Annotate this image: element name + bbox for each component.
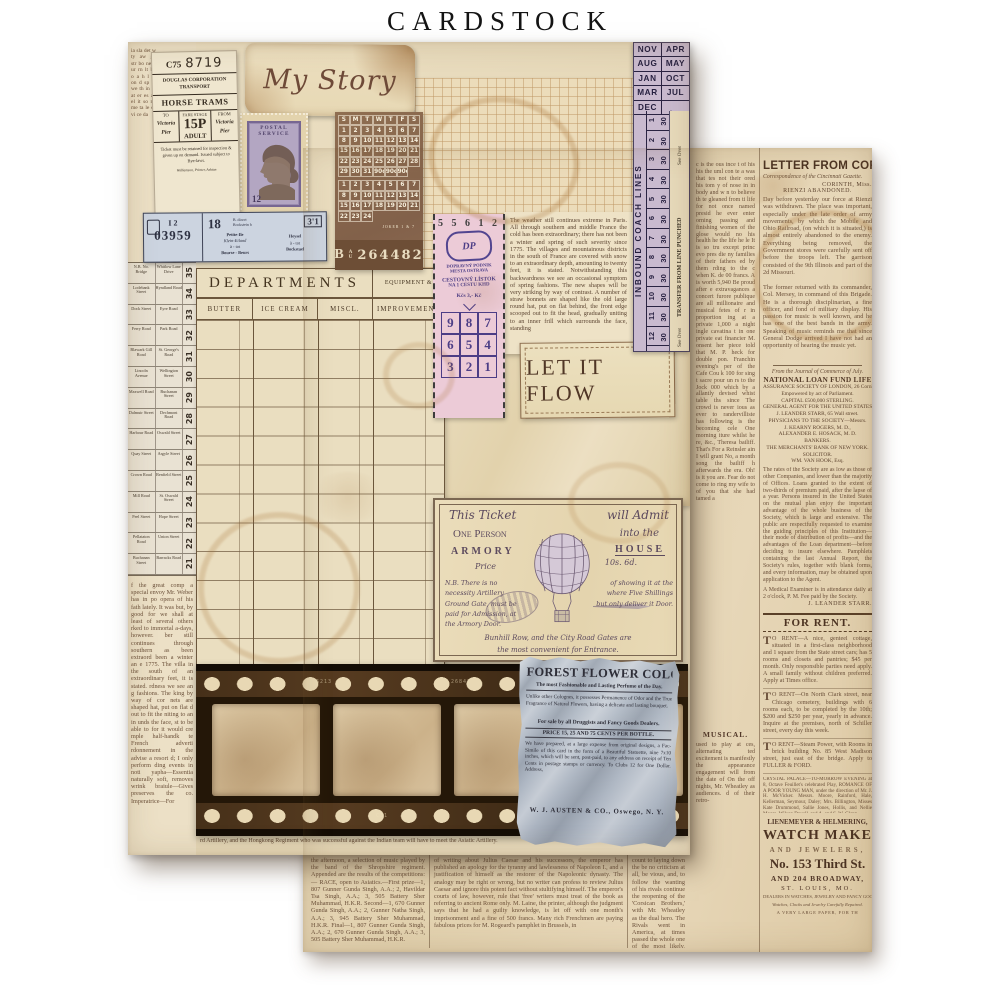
newsprint-column: of writing about Julius Caesar and his s…: [429, 854, 627, 948]
fare-class: ADULT: [180, 133, 211, 141]
calendar-day: 5: [385, 180, 397, 190]
advert-signature: J. LEANDER STARR.: [763, 601, 872, 607]
newsprint-column: count to laying down the be no criticism…: [627, 854, 689, 948]
calendar-day: 28: [408, 157, 420, 167]
punch-digit: 9: [441, 312, 460, 334]
calendar-day: 19: [385, 201, 397, 211]
fare-from-cell: FROM Victoria Pier: [211, 110, 238, 141]
classifieds-header: FOR RENT.: [763, 613, 872, 632]
printer-credit: Williamson, Printer, Ashton: [155, 167, 239, 173]
newspaper-bottom-strip: the afternoon, a selection of music play…: [307, 854, 690, 948]
stage-name: Blawark Gill Road: [128, 346, 156, 366]
stage-number: 35: [185, 267, 194, 278]
advert-price-line: PRICE 15, 25 AND 75 CENTS PER BOTTLE.: [525, 728, 671, 741]
price-value: 10s. 6d.: [605, 558, 637, 567]
stage-number: 27: [185, 434, 194, 445]
calendar-day: 90c: [385, 167, 397, 177]
from-value: Pier: [212, 128, 238, 135]
film-edge-number: 26847: [451, 679, 471, 685]
stage-number: 23: [185, 517, 194, 528]
calendar-day: 13: [397, 136, 409, 146]
stamp-denomination: 12: [252, 194, 261, 204]
ticket-line: HOUSE: [615, 544, 665, 556]
watchmaker-trade2: AND JEWELERS,: [763, 846, 872, 854]
stage-name: Buchanan Street: [156, 388, 184, 408]
calendar-day: 8: [338, 136, 350, 146]
month-left: NOV: [634, 43, 662, 56]
stage-number: 28: [185, 413, 194, 424]
bus-stage-row: Ferry Road Park Road 32: [128, 325, 196, 346]
stage-name: St. Oswald Street: [156, 492, 184, 512]
month-rows: NOV APR AUG MAY JAN OCT MAR JUL DEC: [634, 43, 689, 115]
ticket-line: into the: [620, 528, 659, 539]
ticket-body-left: N.B. There is no necessity Artillery Gro…: [445, 578, 527, 629]
calendar-day: 30: [350, 167, 362, 177]
hot-air-balloon-illustration: [523, 510, 601, 654]
stop-name: Bourse - Beurs: [205, 250, 265, 257]
stage-name: Peel Street: [128, 513, 156, 533]
calendar-day: 8: [338, 191, 350, 201]
punch-row: 2 30: [647, 131, 671, 151]
transfer-label: TRANSFER FROM LINE PUNCHED: [677, 167, 683, 317]
stage-name: Renfield Street: [156, 471, 184, 491]
advert-line: SOLICITOR.: [763, 452, 872, 459]
calendar-day: 15: [338, 201, 350, 211]
stage-name: Eyre Road: [156, 305, 184, 325]
calendar-day: 21: [408, 201, 420, 211]
calendar-day: 24: [361, 157, 373, 167]
ticket-line: ARMORY: [451, 546, 515, 557]
route-terminus-right: Heysel à - tot Bockstael: [269, 233, 321, 253]
watchmaker-city: ST. LOUIS, MO.: [763, 885, 872, 892]
ticket-subtype: NA 1 CESTU KHD: [435, 282, 503, 289]
newspaper-main-column: LETTER FROM CORINTH. Correspondence of t…: [763, 148, 872, 952]
newsprint-fragment: used to play at ces, alternating ted exc…: [696, 742, 755, 872]
stage-number: 22: [185, 538, 194, 549]
product-category-title: CARDSTOCK: [0, 6, 1000, 37]
punch-number: 11: [647, 312, 659, 320]
month-right: MAY: [662, 57, 689, 70]
punch-number: 2: [647, 138, 659, 142]
ticket-title: HORSE TRAMS: [153, 94, 237, 112]
weekday-letter: S: [408, 115, 420, 125]
month-left: AUG: [634, 57, 662, 70]
calendar-month-2: 123456789101112131415161718192021222324: [338, 180, 420, 222]
bus-stage-row: Quay Street Argyle Street 26: [128, 450, 196, 471]
calendar-day: 11: [373, 191, 385, 201]
punch-number-zone: INBOUND COACH LINES 1 30 2 30 3 30 4 30: [634, 111, 672, 351]
calendar-day: 23: [350, 211, 362, 221]
column-rule: [773, 365, 862, 366]
serial-letter-stack: A U: [349, 250, 353, 260]
advert-line: GENERAL AGENT FOR THE UNITED STATES,: [763, 404, 872, 411]
film-frame: [333, 704, 441, 796]
bus-stage-row: Mill Road St. Oswald Street 24: [128, 492, 196, 513]
calendar-day: 17: [361, 146, 373, 156]
route-terminus-left: Petite-Ile Klein-Eiland à - tot Bourse -…: [205, 232, 265, 257]
calendar-day: 9: [350, 191, 362, 201]
calendar-day: 2: [350, 180, 362, 190]
serial-sub: U: [349, 255, 353, 260]
calendar-day: 10: [361, 191, 373, 201]
calendar-day: 27: [397, 157, 409, 167]
calendar-day: 26: [385, 157, 397, 167]
newspaper-cut-column: c is the ous ince t of his his the uml c…: [690, 148, 760, 952]
cardstock-sheet-front: ia sla det w ty aw go str bo ne y ur rn …: [128, 42, 690, 855]
punch-digit: 4: [478, 334, 497, 356]
to-label: TO: [153, 112, 178, 118]
punch-row: 9 30: [647, 268, 671, 288]
watchmaker-firm-name: LIENEMEYER & HELMERING,: [763, 819, 872, 826]
punch-row: 11 30: [647, 307, 671, 327]
punch-number: 9: [647, 275, 659, 279]
ticket-line: One Person: [453, 528, 507, 540]
to-value: Victoria: [153, 120, 178, 127]
punch-digit: 8: [460, 312, 479, 334]
serial-letter: B: [334, 247, 343, 263]
ledger-grid: [197, 320, 444, 667]
calendar-day: 16: [350, 146, 362, 156]
article-paragraph: Day before yesterday our force at Rienzi…: [763, 196, 872, 282]
stage-number: 29: [185, 392, 194, 403]
my-story-text: My Story: [263, 64, 397, 97]
advert-title: FOREST FLOWER COLOGNE,: [526, 665, 672, 683]
route-note: Bockstein b: [233, 222, 252, 227]
calendar-day: 21: [408, 146, 420, 156]
company-line: MESTA OSTRAVA: [435, 267, 503, 274]
advert-body: The rates of the Society are as low as t…: [763, 467, 872, 585]
fare-value: 15P: [179, 117, 210, 134]
weekday-letter: T: [361, 115, 373, 125]
company-name: DOUGLAS CORPORATION TRANSPORT: [152, 73, 236, 96]
stage-name: Dalmuir Street: [128, 409, 156, 429]
classified-ad: TO RENT—A nice, genteel cottage, situate…: [763, 636, 872, 689]
transport-company-logo: DP: [445, 230, 493, 262]
inbound-coach-lines-label: INBOUND COACH LINES: [634, 111, 647, 351]
stop-name: Bockstael: [269, 246, 321, 253]
theatre-notice: CRYSTAL PALACE—TO-MORROW EVENING at 8, O…: [763, 777, 872, 813]
stage-name: St. George's Road: [156, 346, 184, 366]
calendar-day: 13: [397, 191, 409, 201]
weekday-letter: T: [385, 115, 397, 125]
bus-stage-row: Dalmuir Street Dechmont Road 28: [128, 409, 196, 430]
calendar-day: 20: [397, 146, 409, 156]
newsprint-column: the afternoon, a selection of music play…: [307, 854, 429, 948]
advert-line: THE MERCHANTS' BANK OF NEW YORK.: [763, 445, 872, 452]
classified-ads: TO RENT—A nice, genteel cottage, situate…: [763, 636, 872, 774]
stage-name: Buchanan Street: [128, 554, 156, 574]
punch-digit: 6: [441, 334, 460, 356]
weekday-letter: W: [373, 115, 385, 125]
stage-name: N.B. No. Bridge: [128, 263, 156, 283]
calendar-day: 24: [361, 211, 373, 221]
punch-number: 6: [647, 216, 659, 220]
bus-stage-row: Pellataton Road Union Street 22: [128, 533, 196, 554]
newsprint-fragment: f the great comp a special envoy Mr. Web…: [131, 582, 193, 850]
punch-rows: 1 30 2 30 3 30 4 30 5 30: [647, 111, 671, 346]
bus-stage-row: Crown Road Renfield Street 25: [128, 471, 196, 492]
punch-digit: 2: [460, 356, 479, 378]
paper-promo-line: A VERY LARGE PAPER, FOR TH: [763, 910, 872, 916]
bus-stage-row: Peel Street Hope Street 23: [128, 513, 196, 534]
calendar-day: 20: [397, 201, 409, 211]
punch-number: 1: [647, 118, 659, 122]
advert-line: J. LEANDER STARR, 65 Wall street.: [763, 411, 872, 418]
transfer-ticket-strip: NOV APR AUG MAY JAN OCT MAR JUL DEC INBO…: [633, 42, 690, 352]
classified-ad: TO RENT—On North Clark street, near Chic…: [763, 692, 872, 738]
calendar-day: 14: [408, 191, 420, 201]
calendar-day: 31: [361, 167, 373, 177]
weather-paragraph: The weather still continues extreme in P…: [510, 217, 627, 349]
ledger-title: DEPARTMENTS: [197, 269, 373, 297]
punch-digit: 5: [460, 334, 479, 356]
stage-name: Mill Road: [128, 492, 156, 512]
advert-note: A Medical Examiner is in attendance dail…: [763, 587, 872, 601]
calendar-day: 90c: [397, 167, 409, 177]
punch-digit: 1: [478, 356, 497, 378]
calendar-day: 6: [397, 125, 409, 135]
ticket-footer: Bunhill Row, and the City Road Gates are: [435, 634, 681, 642]
punch-row: 10 30: [647, 287, 671, 307]
bus-stage-row: Harbour Road Oswald Street 27: [128, 429, 196, 450]
stage-name: Argyle Street: [156, 450, 184, 470]
punch-digit-grid: 987654321: [441, 312, 497, 378]
calendar-day: 18: [373, 201, 385, 211]
stage-name: Union Street: [156, 533, 184, 553]
punch-row: 1 30: [647, 111, 671, 131]
stage-number: 32: [185, 330, 194, 341]
ledger-column-header: MISCL.: [318, 299, 373, 319]
stage-name: Pellataton Road: [128, 533, 156, 553]
article-headline: LETTER FROM CORINTH.: [763, 160, 872, 172]
calendar-day: 90c: [373, 167, 385, 177]
stage-name: Hyndland Road: [156, 284, 184, 304]
calendar-day: 1: [338, 180, 350, 190]
classified-ad: TO RENT—Steam Power, with Rooms in brick…: [763, 742, 872, 774]
bus-stage-row: Lincoln Avenue Wellington Street 30: [128, 367, 196, 388]
advert-line: WM. VAN HOOK, Esq.: [763, 458, 872, 465]
price-chevron-mark: [463, 298, 476, 311]
calendar-day: 14: [408, 136, 420, 146]
calendar-day: 29: [338, 167, 350, 177]
bus-stage-row: Lodebank Street Hyndland Road 34: [128, 284, 196, 305]
advert-line: ASSURANCE SOCIETY OF LONDON, 26 Cornhill…: [763, 384, 872, 391]
article-paragraph: The former returned with its commander, …: [763, 284, 872, 362]
calendar-day: 10: [361, 136, 373, 146]
stage-name: Oswald Street: [156, 429, 184, 449]
departments-ledger: DEPARTMENTS EQUIPMENT & BUTTERICE CREAMM…: [196, 268, 445, 670]
newsprint-fragment: c is the ous ince t of his his the uml c…: [696, 162, 755, 722]
calendar-day: 2: [350, 125, 362, 135]
stamp-header: POSTAL SERVICE: [249, 125, 299, 137]
let-it-flow-text: LET IT FLOW: [526, 353, 670, 406]
bus-ticket-stage-list: N.B. No. Bridge Whitlow Lane Drive 35 Lo…: [128, 262, 196, 576]
stage-number: 31: [185, 351, 194, 362]
fare-stage-cell: FARE STAGE 15P ADULT: [179, 111, 212, 142]
film-frame: [212, 704, 320, 796]
stage-name: Harbour Road: [128, 429, 156, 449]
let-it-flow-label: LET IT FLOW: [520, 341, 676, 419]
bus-stage-row: Maxwell Road Buchanan Street 29: [128, 388, 196, 409]
woman-portrait-illustration: [249, 138, 301, 200]
bus-stage-row: N.B. No. Bridge Whitlow Lane Drive 35: [128, 263, 196, 284]
month-row: JAN OCT: [634, 72, 689, 86]
stage-name: Hope Street: [156, 513, 184, 533]
from-label: FROM: [211, 111, 237, 117]
bus-stage-row: Blawark Gill Road St. George's Road 31: [128, 346, 196, 367]
stage-name: Dock Street: [128, 305, 156, 325]
advert-line: ALEXANDER E. HOSACK, M. D.: [763, 431, 872, 438]
calendar-note: JOKER 1 & 7: [383, 225, 415, 229]
stage-number: 34: [185, 288, 194, 299]
calendar-day: 3: [361, 125, 373, 135]
stage-name: Quay Street: [128, 450, 156, 470]
stage-name: Crown Road: [128, 471, 156, 491]
calendar-day: 19: [385, 146, 397, 156]
punch-digit: 7: [478, 312, 497, 334]
article-subhead: RIENZI ABANDONED.: [763, 188, 872, 194]
advert-signature: W. J. AUSTEN & CO., Oswego, N. Y.: [524, 807, 670, 817]
stage-name: Dechmont Road: [156, 409, 184, 429]
calendar-day: 11: [373, 136, 385, 146]
watchmaker-address2: AND 204 BROADWAY,: [763, 874, 872, 883]
serial-prefix: C75: [166, 59, 182, 69]
punch-row: 4 30: [647, 170, 671, 190]
punch-row: 7 30: [647, 229, 671, 249]
price-label: Price: [475, 562, 496, 571]
stage-name: Ferry Road: [128, 325, 156, 345]
ledger-column-header: BUTTER: [197, 299, 253, 319]
ticket-serial-block: I 2 03959: [144, 213, 203, 262]
weekday-letter: S: [338, 115, 350, 125]
calendar-day: 5: [385, 125, 397, 135]
weekday-header: SMTWTFS: [338, 115, 420, 125]
advert-line: BANKERS.: [763, 438, 872, 445]
calendar-month-1: 1234567891011121314151617181920212223242…: [338, 125, 420, 177]
ticket-line: will Admit: [607, 508, 669, 522]
advert-sale-line: For sale by all Druggists and Fancy Good…: [526, 719, 672, 728]
weekday-letter: F: [397, 115, 409, 125]
logo-letters: DP: [462, 240, 476, 252]
calendar-day: 6: [397, 180, 409, 190]
month-row: AUG MAY: [634, 57, 689, 71]
calendar-day: 15: [338, 146, 350, 156]
calendar-day: 12: [385, 136, 397, 146]
film-edge-number: 6213: [316, 679, 332, 685]
watchmaker-trade: WATCH MAKERS: [763, 828, 872, 844]
month-row: NOV APR: [634, 43, 689, 57]
stage-name: Wellington Street: [156, 367, 184, 387]
calendar-day: 23: [350, 157, 362, 167]
ticket-line: This Ticket: [449, 508, 516, 522]
see-over-label: See Over: [677, 113, 683, 165]
month-right: APR: [662, 43, 689, 56]
calendar-day: 9: [350, 136, 362, 146]
punch-row: 8 30: [647, 248, 671, 268]
calendar-day: 16: [350, 201, 362, 211]
serial-ticket: B A U 264482: [335, 240, 423, 270]
ticket-body-right: of showing it at the where Five Shilling…: [595, 578, 673, 609]
weather-news-clip: The weather still continues extreme in P…: [504, 212, 633, 354]
watchmaker-dealers-line: DEALERS IN WATCHES, JEWELRY AND FANCY GO…: [763, 894, 872, 900]
ticket-footer: the most convenient for Entrance.: [435, 646, 681, 654]
bus-stage-row: Buchanan Street Barracks Road 21: [128, 554, 196, 575]
ticket-fare: 3'1: [304, 215, 322, 227]
stage-number: 30: [185, 371, 194, 382]
watchmaker-address: No. 153 Third St.: [763, 856, 872, 872]
ledger-header: DEPARTMENTS EQUIPMENT &: [197, 269, 444, 299]
stamp-panel: POSTAL SERVICE 12: [240, 113, 308, 217]
from-value: Victoria: [211, 119, 237, 126]
stage-number: 33: [185, 309, 194, 320]
my-story-label: My Story: [245, 43, 416, 117]
calendar-day: 12: [385, 191, 397, 201]
newspaper-right-section: c is the ous ince t of his his the uml c…: [690, 148, 872, 952]
newsprint-fragment: rd Artillery, and the Hongkong Regiment …: [200, 838, 500, 853]
calendar-day: 4: [373, 180, 385, 190]
advert-lines: ASSURANCE SOCIETY OF LONDON, 26 Cornhill…: [763, 384, 872, 465]
stage-name: Maxwell Road: [128, 388, 156, 408]
punch-row: 12 30: [647, 327, 671, 347]
punch-row: 5 30: [647, 189, 671, 209]
stage-number: 25: [185, 475, 194, 486]
stage-number: 26: [185, 455, 194, 466]
weekday-letter: M: [350, 115, 362, 125]
punch-number: 12: [647, 332, 659, 340]
label-inner-frame: LET IT FLOW: [525, 346, 671, 414]
stage-name: Lodebank Street: [128, 284, 156, 304]
fare-table: TO Victoria Pier FARE STAGE 15P ADULT FR…: [153, 110, 238, 143]
postal-service-stamp: POSTAL SERVICE 12: [247, 121, 301, 207]
bus-stage-row: Dock Street Eyre Road 33: [128, 305, 196, 326]
ticket-route-block: 18 B. direct Bockstein b 3'1 Petite-Ile …: [203, 212, 326, 261]
stage-name: Lincoln Avenue: [128, 367, 156, 387]
calendar-day: 22: [338, 211, 350, 221]
advert-line: Empowered by act of Parliament.: [763, 391, 872, 398]
advert-line: PHYSICIANS TO THE SOCIETY—Messrs.: [763, 418, 872, 425]
cardstock-product-photo: CARDSTOCK c is the ous ince t of his his…: [0, 0, 1000, 1000]
cologne-advert: FOREST FLOWER COLOGNE, The most Fashiona…: [516, 656, 680, 847]
ledger-column-headers: BUTTERICE CREAMMISCL.IMPROVEMENT: [197, 299, 444, 320]
balloon-admission-ticket: This Ticket will Admit One Person into t…: [433, 498, 683, 662]
month-row: MAR JUL: [634, 86, 689, 100]
advert-title: NATIONAL LOAN FUND LIFE: [763, 375, 872, 384]
stage-number: 24: [185, 496, 194, 507]
punch-digit: 3: [441, 356, 460, 378]
punch-number: 10: [647, 292, 659, 300]
calendar-day: 3: [361, 180, 373, 190]
calendar-day: 7: [408, 125, 420, 135]
musical-section-header: MUSICAL.: [696, 730, 755, 739]
article-dateline: Correspondence of the Cincinnati Gazette…: [763, 174, 872, 180]
calendar-day: 1: [338, 125, 350, 135]
ticket-serial: 5 5 6 1 2: [435, 218, 503, 229]
punch-number: 7: [647, 236, 659, 240]
stage-name: Whitlow Lane Drive: [156, 263, 184, 283]
month-right: OCT: [662, 72, 689, 85]
to-value: Pier: [154, 129, 179, 136]
month-right: JUL: [662, 86, 689, 99]
tram-ticket-blue: I 2 03959 18 B. direct Bockstein b 3'1 P…: [143, 211, 327, 263]
film-edge-number: C31: [376, 813, 388, 819]
ledger-column-header: ICE CREAM: [253, 299, 318, 319]
advert-subtitle: The most Fashionable and Lasting Perfume…: [526, 682, 672, 694]
punch-row: 6 30: [647, 209, 671, 229]
calendar-day: 22: [338, 157, 350, 167]
calendar-day: 7: [408, 180, 420, 190]
advert-line: CAPITAL £500,000 STERLING.: [763, 398, 872, 405]
punch-number: 8: [647, 255, 659, 259]
